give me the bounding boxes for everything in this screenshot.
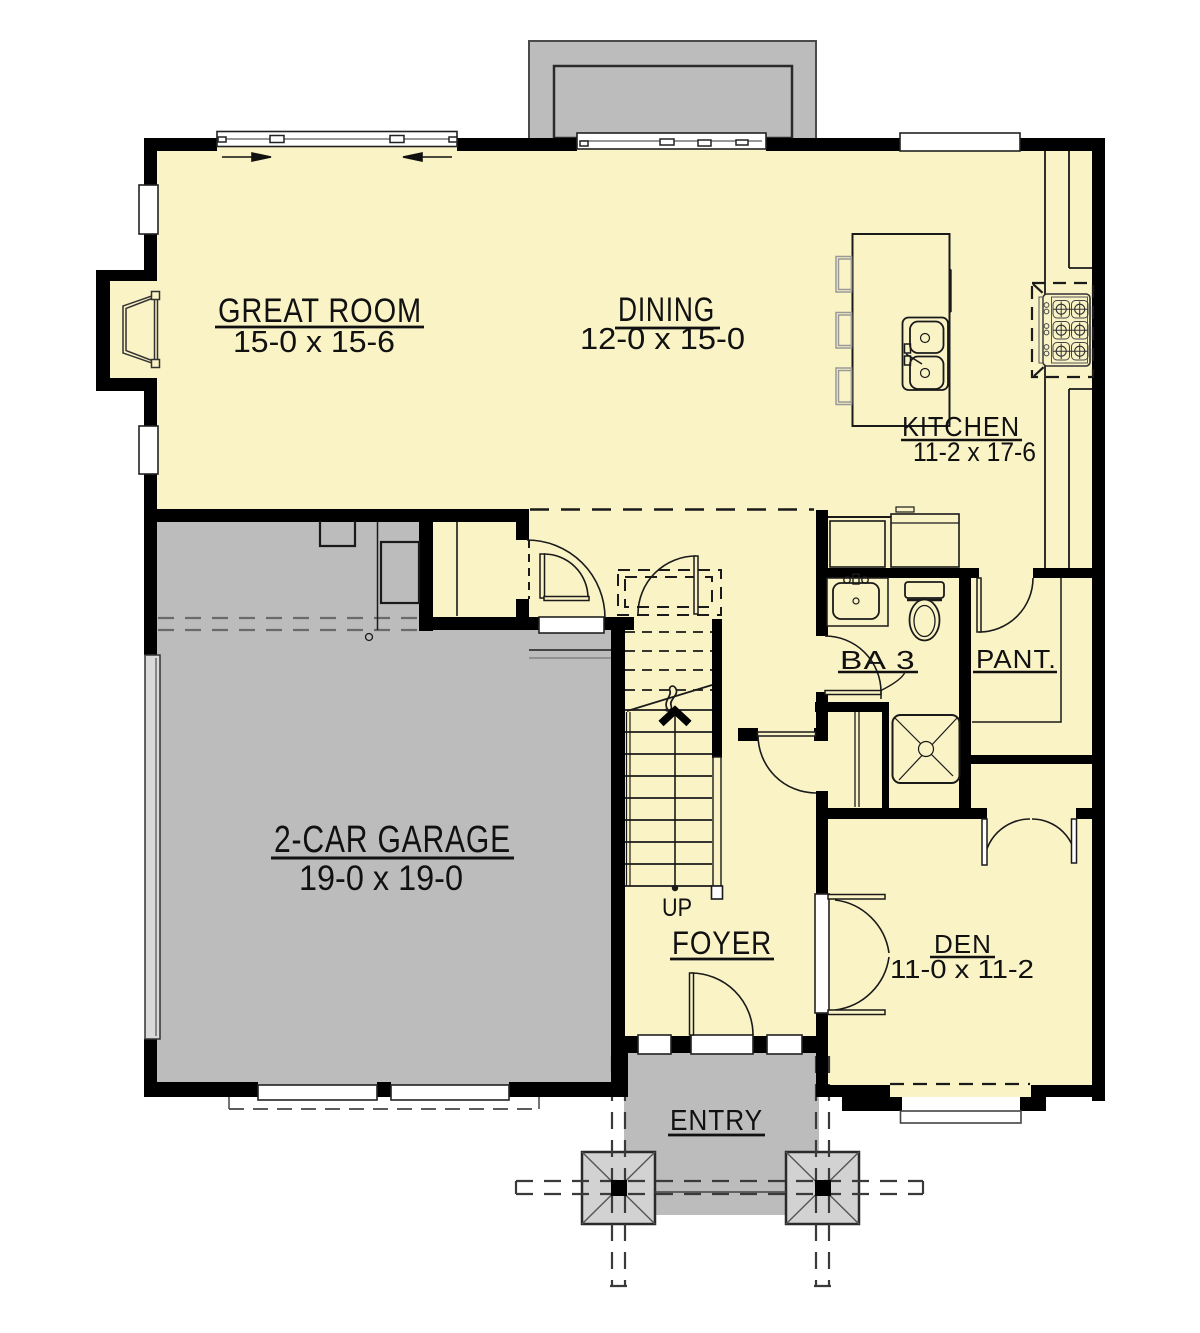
svg-text:BA 3: BA 3 <box>840 645 916 675</box>
svg-text:15-0 x 15-6: 15-0 x 15-6 <box>233 324 395 359</box>
svg-text:FOYER: FOYER <box>672 925 772 961</box>
svg-text:11-2 x 17-6: 11-2 x 17-6 <box>913 437 1036 467</box>
svg-text:PANT.: PANT. <box>976 644 1057 674</box>
svg-text:11-0 x 11-2: 11-0 x 11-2 <box>890 954 1034 984</box>
svg-text:12-0 x 15-0: 12-0 x 15-0 <box>580 321 745 356</box>
svg-text:UP: UP <box>662 894 692 922</box>
svg-text:19-0 x 19-0: 19-0 x 19-0 <box>299 859 463 898</box>
svg-text:ENTRY: ENTRY <box>670 1105 763 1137</box>
svg-text:2-CAR GARAGE: 2-CAR GARAGE <box>274 819 511 861</box>
